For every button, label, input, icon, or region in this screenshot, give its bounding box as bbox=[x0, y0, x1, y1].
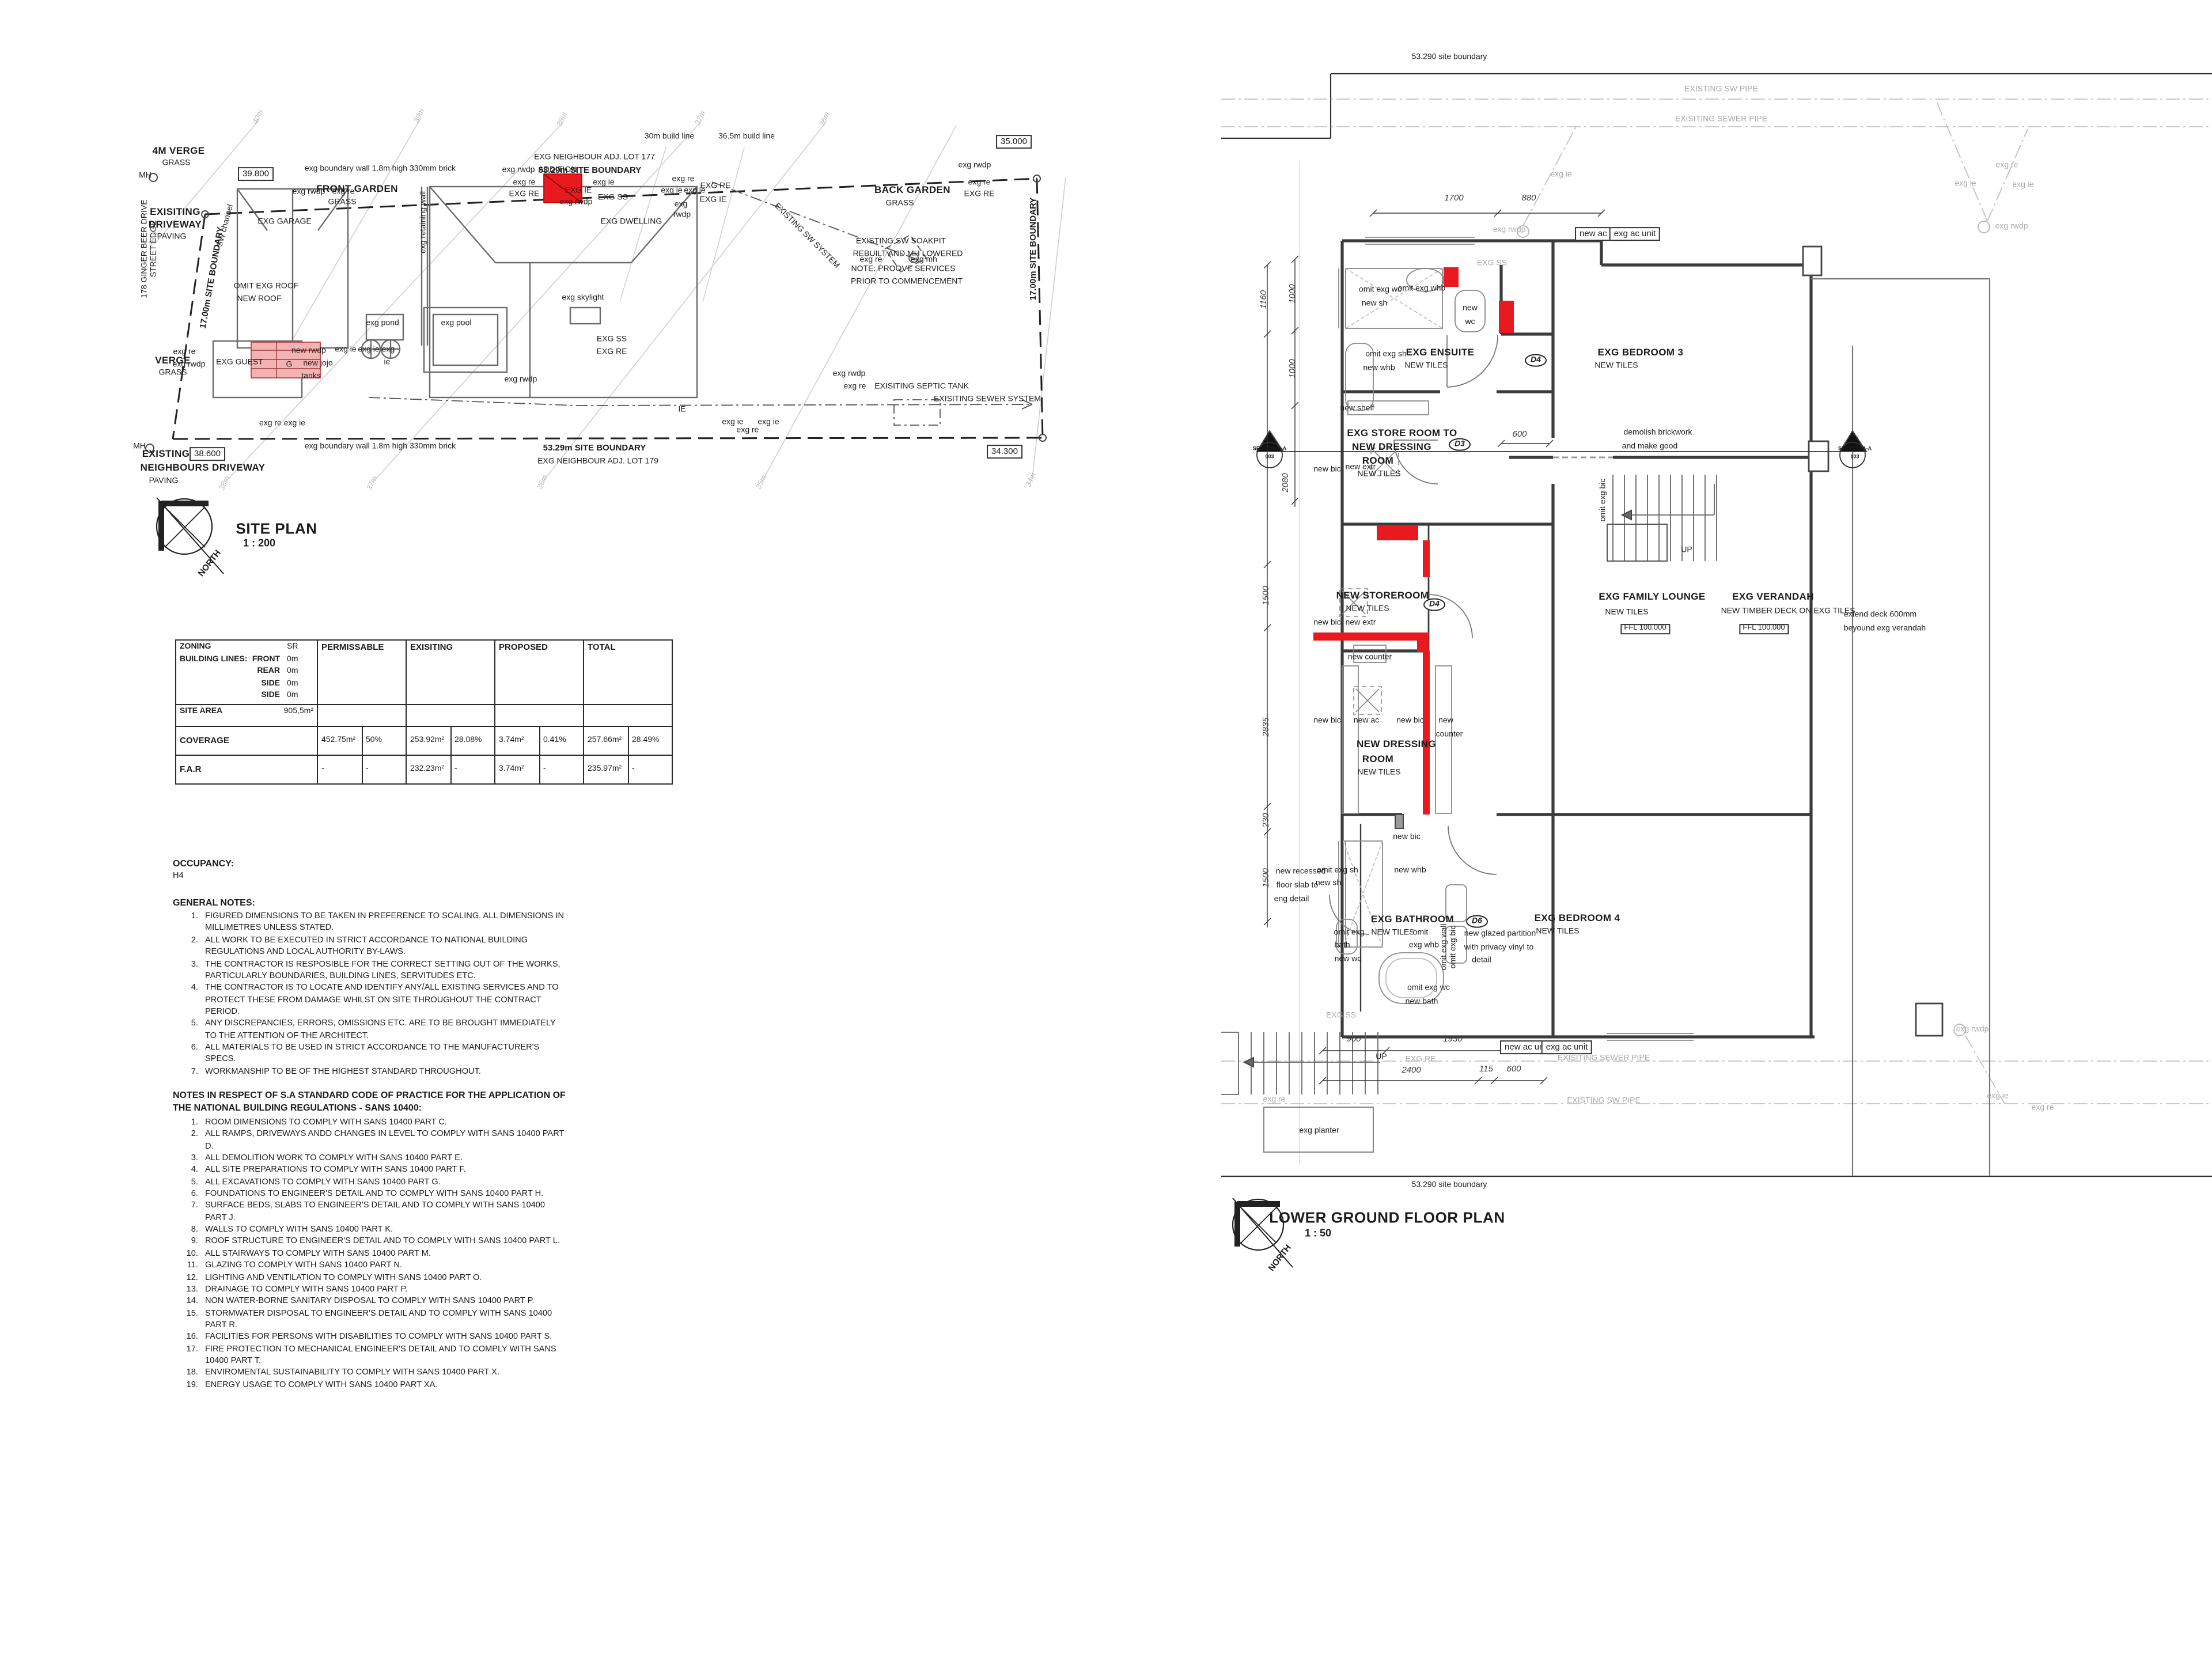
annotation: omit exg whb bbox=[1398, 285, 1446, 294]
general-notes-title: GENERAL NOTES: bbox=[173, 896, 567, 909]
room-bathroom: EXG BATHROOM bbox=[1371, 914, 1454, 925]
annotation: omit exg bic bbox=[1600, 479, 1608, 522]
annotation: EXG RE bbox=[1406, 1056, 1436, 1065]
annotation: NEW DRESSING bbox=[1352, 442, 1431, 452]
far-value: - bbox=[628, 755, 672, 783]
room-ensuite: EXG ENSUITE bbox=[1406, 347, 1475, 358]
annotation: beyound exg verandah bbox=[1844, 625, 1926, 634]
note-item: FACILITIES FOR PERSONS WITH DISABILITIES… bbox=[200, 1331, 567, 1343]
annotation: ie bbox=[384, 359, 391, 368]
room-bedroom3: EXG BEDROOM 3 bbox=[1598, 347, 1684, 358]
annotation: new bbox=[1463, 305, 1478, 313]
side-value: 0m bbox=[287, 678, 313, 690]
note-item: STORMWATER DISPOSAL TO ENGINEER'S DETAIL… bbox=[200, 1307, 567, 1331]
coverage-value: 50% bbox=[362, 726, 406, 755]
annotation: NOTE: PROOVE SERVICES bbox=[851, 266, 955, 274]
annotation: exg ie bbox=[593, 179, 614, 188]
annotation: exg boundary wall 1.8m high 330mm brick bbox=[305, 165, 456, 174]
annotation: exg rwdp bbox=[1493, 226, 1526, 235]
annotation: exg re bbox=[1996, 162, 2018, 171]
annotation: exg re bbox=[2032, 1104, 2054, 1113]
annotation: EXISITING SEWER SYSTEM bbox=[934, 396, 1041, 404]
annotation: 600 bbox=[1506, 1065, 1521, 1074]
drawing-sheet: 4M VERGEGRASS39.800MHexg boundary wall 1… bbox=[0, 0, 2212, 1659]
annotation: detail bbox=[1472, 957, 1491, 965]
annotation: new bic bbox=[1393, 834, 1420, 842]
coverage-value: 3.74m² bbox=[495, 726, 539, 755]
annotation: new whb bbox=[1363, 365, 1395, 373]
building-lines-label: BUILDING LINES: bbox=[180, 654, 252, 666]
note-item: SURFACE BEDS, SLABS TO ENGINEER'S DETAIL… bbox=[200, 1200, 567, 1224]
far-value: - bbox=[317, 755, 362, 783]
far-value: 232.23m² bbox=[406, 755, 450, 783]
note-item: ALL EXCAVATIONS TO COMPLY WITH SANS 1040… bbox=[200, 1176, 567, 1188]
annotation: omit bbox=[1413, 929, 1428, 938]
annotation: and make good bbox=[1622, 443, 1678, 452]
level-34300: 34.300 bbox=[987, 445, 1022, 459]
annotation: 115 bbox=[1479, 1065, 1493, 1074]
side-value: 0m bbox=[287, 690, 313, 702]
annotation: exg re bbox=[1263, 1096, 1286, 1105]
annotation: GRASS bbox=[328, 199, 356, 207]
exg-ac-unit: exg ac unit bbox=[1609, 227, 1661, 241]
note-item: ALL STAIRWAYS TO COMPLY WITH SANS 10400 … bbox=[200, 1248, 567, 1260]
annotation: EXG RE bbox=[700, 183, 731, 191]
note-item: ENVIROMENTAL SUSTAINABILITY TO COMPLY WI… bbox=[200, 1367, 567, 1379]
annotation: EXG RE bbox=[597, 349, 627, 357]
sans-notes-list: ROOM DIMENSIONS TO COMPLY WITH SANS 1040… bbox=[173, 1116, 567, 1391]
room-verandah: EXG VERANDAH bbox=[1732, 592, 1814, 602]
annotation: exg re bbox=[672, 176, 695, 184]
annotation: exg rwdp bbox=[833, 370, 866, 379]
site-boundary-east: 17.00m SITE BOUNDARY bbox=[1029, 198, 1038, 301]
annotation: 003 bbox=[1265, 454, 1274, 460]
annotation: new wc bbox=[1335, 956, 1362, 964]
annotation: NEIGHBOURS DRIVEWAY bbox=[141, 463, 266, 473]
annotation: omit exg wc bbox=[1359, 286, 1402, 295]
annotation: NEW TILES bbox=[1594, 362, 1638, 371]
annotation: EXG GUEST bbox=[216, 359, 263, 368]
annotation: EXG RE bbox=[509, 191, 540, 199]
note-item: THE CONTRACTOR IS TO LOCATE AND IDENTIFY… bbox=[200, 982, 567, 1017]
annotation: demolish brickwork bbox=[1623, 429, 1692, 438]
annotation: 230 bbox=[1262, 813, 1271, 827]
note-item: ALL SITE PREPARATIONS TO COMPLY WITH SAN… bbox=[200, 1164, 567, 1176]
annotation: EXG SS bbox=[1326, 1012, 1356, 1021]
annotation: exg ie bbox=[1987, 1093, 2008, 1101]
annotation: NEW TILES bbox=[1346, 605, 1389, 614]
annotation: 1160 bbox=[1259, 290, 1268, 309]
annotation: EXISTING SW PIPE bbox=[1684, 86, 1758, 94]
annotation: NEW TIMBER DECK ON EXG TILES bbox=[1721, 608, 1855, 616]
note-item: GLAZING TO COMPLY WITH SANS 10400 PART N… bbox=[200, 1259, 567, 1271]
site-area-value: 905,5m² bbox=[284, 706, 313, 718]
annotation: new bic bbox=[1313, 466, 1340, 475]
annotation: EXG RE bbox=[964, 191, 995, 199]
verge-label: 4M VERGE bbox=[152, 146, 204, 156]
far-value: 3.74m² bbox=[495, 755, 539, 783]
annotation: extend deck 600mm bbox=[1844, 611, 1916, 620]
annotation: omit exg wall bbox=[1441, 924, 1449, 971]
occupancy-label: OCCUPANCY: bbox=[173, 857, 567, 870]
annotation: new jojo bbox=[303, 360, 332, 369]
ffl-lounge: FFL 100.000 bbox=[1620, 624, 1669, 634]
coverage-value: 28.08% bbox=[450, 726, 495, 755]
annotation: exg bbox=[675, 201, 688, 210]
annotation: omit exg wc bbox=[1407, 984, 1450, 993]
annotation: counter bbox=[1436, 731, 1463, 740]
annotation: new bic bbox=[1313, 619, 1340, 628]
annotation: omit exg sh bbox=[1365, 351, 1407, 359]
section-marker-left: SECTION A-A bbox=[1253, 446, 1286, 452]
annotation: 2400 bbox=[1402, 1066, 1421, 1075]
col-total: TOTAL bbox=[584, 640, 672, 704]
annotation: EXG NEIGHBOUR ADJ. LOT 177 bbox=[534, 154, 655, 162]
annotation: exg retaining wall bbox=[420, 191, 429, 253]
sans-notes-title-1: NOTES IN RESPECT OF S.A STANDARD CODE OF… bbox=[173, 1089, 567, 1102]
annotation: exg rwdp bbox=[959, 162, 991, 171]
notes-panel: OCCUPANCY: H4 GENERAL NOTES: FIGURED DIM… bbox=[173, 857, 567, 1402]
annotation: exg re bbox=[513, 179, 536, 188]
note-item: ROOF STRUCTURE TO ENGINEER'S DETAIL AND … bbox=[200, 1236, 567, 1248]
annotation: exg bbox=[382, 346, 395, 355]
annotation: 1500 bbox=[1262, 868, 1271, 887]
front-label: FRONT bbox=[252, 654, 287, 666]
far-row: F.A.R - - 232.23m² - 3.74m² - 235.97m² - bbox=[176, 755, 672, 783]
floor-plan-scale: 1 : 50 bbox=[1305, 1229, 1331, 1240]
note-item: ROOM DIMENSIONS TO COMPLY WITH SANS 1040… bbox=[200, 1116, 567, 1128]
rear-label: REAR bbox=[252, 666, 287, 678]
annotation: exg ie bbox=[358, 346, 379, 355]
occupancy-value: H4 bbox=[173, 870, 567, 882]
annotation: PAVING bbox=[149, 478, 179, 486]
annotation: omit exg bbox=[1334, 929, 1365, 938]
annotation: 2080 bbox=[1281, 473, 1290, 492]
level-35000: 35.000 bbox=[996, 135, 1032, 149]
annotation: PAVING bbox=[157, 233, 187, 242]
note-item: THE CONTRACTOR IS RESPOSIBLE FOR THE COR… bbox=[200, 958, 567, 982]
zoning-value: SR bbox=[287, 642, 313, 654]
annotation: exg ie bbox=[722, 419, 743, 427]
site-plan-title: SITE PLAN bbox=[236, 521, 317, 536]
zoning-table: ZONINGSR BUILDING LINES:FRONT0m REAR0m S… bbox=[175, 639, 673, 784]
coverage-label: COVERAGE bbox=[176, 726, 317, 755]
annotation: exg ie bbox=[2012, 181, 2033, 190]
annotation: 2835 bbox=[1262, 717, 1271, 736]
annotation: exg planter bbox=[1299, 1127, 1339, 1136]
general-notes-list: FIGURED DIMENSIONS TO BE TAKEN IN PREFER… bbox=[173, 910, 567, 1077]
annotation: exg pool bbox=[441, 320, 472, 328]
annotation: new extr bbox=[1346, 464, 1376, 472]
annotation: 880 bbox=[1521, 194, 1536, 203]
annotation: NEW TILES bbox=[1357, 769, 1400, 778]
site-area-label: SITE AREA bbox=[180, 706, 249, 718]
far-value: - bbox=[450, 755, 495, 783]
zoning-info-cell: ZONINGSR BUILDING LINES:FRONT0m REAR0m S… bbox=[176, 640, 317, 704]
front-value: 0m bbox=[287, 654, 313, 666]
coverage-value: 253.92m² bbox=[406, 726, 450, 755]
annotation: exg pond bbox=[366, 320, 399, 328]
annotation: exg re exg ie bbox=[259, 420, 305, 429]
annotation: new bath bbox=[1406, 998, 1438, 1007]
note-item: ALL DEMOLITION WORK TO COMPLY WITH SANS … bbox=[200, 1152, 567, 1164]
annotation: UP bbox=[1681, 547, 1692, 555]
annotation: IE bbox=[678, 406, 685, 415]
far-label: F.A.R bbox=[176, 755, 317, 783]
annotation: STREET EDGE bbox=[150, 221, 159, 278]
annotation: new bbox=[1438, 717, 1453, 726]
annotation: UP bbox=[1376, 1054, 1387, 1062]
annotation: EXG GARAGE bbox=[257, 218, 311, 227]
annotation: exg rwdp bbox=[502, 166, 535, 175]
room-bedroom4: EXG BEDROOM 4 bbox=[1535, 913, 1620, 923]
note-item: WORKMANSHIP TO BE OF THE HIGHEST STANDAR… bbox=[200, 1066, 567, 1078]
coverage-value: 28.49% bbox=[628, 726, 672, 755]
annotation: exg rwdp bbox=[1956, 1026, 1989, 1035]
annotation: new shelf bbox=[1340, 405, 1374, 414]
coverage-value: 452.75m² bbox=[317, 726, 362, 755]
annotation: 1500 bbox=[1262, 586, 1271, 605]
annotation: 178 GINGER BEER DRIVE bbox=[141, 199, 150, 298]
annotation: PRIOR TO COMMENCEMENT bbox=[851, 278, 963, 287]
annotation: omit exg bic bbox=[1450, 926, 1459, 969]
annotation: EXISTING SW PIPE bbox=[1567, 1097, 1641, 1106]
annotation: EXG DWELLING bbox=[601, 218, 662, 227]
annotation: EXISTING SW SOAKPIT bbox=[856, 238, 946, 247]
annotation: new bic bbox=[1396, 717, 1423, 726]
annotation: EXISTING bbox=[142, 449, 190, 459]
annotation: with privacy vinyl to bbox=[1464, 944, 1534, 953]
annotation: tanks bbox=[301, 373, 320, 381]
site-plan-scale: 1 : 200 bbox=[243, 539, 275, 550]
annotation: new extr bbox=[1346, 619, 1376, 628]
room-family-lounge: EXG FAMILY LOUNGE bbox=[1599, 592, 1705, 602]
zoning-label: ZONING bbox=[180, 642, 252, 654]
annotation: exg ie bbox=[757, 419, 779, 427]
note-item: DRAINAGE TO COMPLY WITH SANS 10400 PART … bbox=[200, 1283, 567, 1296]
annotation: EXG NEIGHBOUR ADJ. LOT 179 bbox=[537, 458, 658, 467]
section-marker-right: SECTION A-A bbox=[1838, 446, 1872, 452]
annotation: exg ie bbox=[661, 187, 682, 196]
annotation: GRASS bbox=[158, 369, 187, 378]
annotation: 30m build line bbox=[645, 133, 694, 142]
ffl-verandah: FFL 100.000 bbox=[1739, 624, 1788, 634]
sans-notes-title-2: THE NATIONAL BUILDING REGULATIONS - SANS… bbox=[173, 1102, 567, 1115]
annotation: NEW TILES bbox=[1536, 928, 1579, 937]
level-38600: 38.600 bbox=[190, 447, 225, 461]
col-existing: EXISITING bbox=[406, 640, 495, 704]
note-item: ANY DISCREPANCIES, ERRORS, OMISSIONS ETC… bbox=[200, 1018, 567, 1041]
annotation: EXISITING bbox=[150, 207, 200, 217]
annotation: exg whb bbox=[1409, 942, 1439, 950]
annotation: MH bbox=[139, 172, 151, 181]
annotation: 900 bbox=[1346, 1035, 1361, 1044]
fp-boundary-top: 53.290 site boundary bbox=[1412, 54, 1487, 62]
annotation: exg ie bbox=[1955, 180, 1976, 189]
annotation: exg mh bbox=[911, 256, 937, 265]
annotation: EXISITING SEWER PIPE bbox=[1675, 116, 1767, 124]
annotation: EXG SS bbox=[1477, 260, 1507, 268]
annotation: EXISITING SEWER PIPE bbox=[1558, 1055, 1650, 1063]
site-boundary-north: 53.29m SITE BOUNDARY bbox=[539, 166, 642, 175]
annotation: 1000 bbox=[1288, 359, 1297, 378]
annotation: EXG SS bbox=[597, 336, 627, 344]
coverage-value: 0.41% bbox=[539, 726, 584, 755]
annotation: EXISITING SEPTIC TANK bbox=[874, 383, 969, 392]
coverage-row: COVERAGE 452.75m² 50% 253.92m² 28.08% 3.… bbox=[176, 726, 672, 755]
exg-ac-unit-2: exg ac unit bbox=[1541, 1040, 1593, 1054]
annotation: new bic bbox=[1313, 717, 1340, 726]
far-value: 235.97m² bbox=[584, 755, 628, 783]
annotation: exg re bbox=[860, 256, 882, 265]
annotation: NEW ROOF bbox=[237, 296, 282, 304]
site-boundary-south: 53.29m SITE BOUNDARY bbox=[543, 444, 646, 453]
side-label: SIDE bbox=[252, 678, 287, 690]
annotation: eng detail bbox=[1274, 896, 1309, 904]
annotation: exg ie bbox=[335, 346, 356, 355]
annotation: EXG SS bbox=[598, 194, 628, 203]
side-label: SIDE bbox=[252, 690, 287, 702]
site-area-cell: SITE AREA905,5m² bbox=[176, 704, 317, 726]
note-item: ALL RAMPS, DRIVEWAYS ANDD CHANGES IN LEV… bbox=[200, 1128, 567, 1152]
note-item: NON WATER-BORNE SANITARY DISPOSAL TO COM… bbox=[200, 1295, 567, 1307]
annotation: wc bbox=[1465, 319, 1475, 327]
note-item: FOUNDATIONS TO ENGINEER'S DETAIL AND TO … bbox=[200, 1188, 567, 1200]
annotation: bath bbox=[1334, 942, 1350, 950]
annotation: OMIT EXG ROOF bbox=[234, 283, 299, 291]
annotation: floor slab to bbox=[1277, 882, 1318, 891]
note-item: FIRE PROTECTION TO MECHANICAL ENGINEER'S… bbox=[200, 1343, 567, 1366]
annotation: 003 bbox=[1850, 454, 1859, 460]
annotation: exg rwdp bbox=[505, 376, 537, 385]
room-new-storeroom: NEW STOREROOM bbox=[1336, 590, 1429, 601]
annotation: FRONT GARDEN bbox=[316, 184, 398, 194]
far-value: - bbox=[362, 755, 406, 783]
annotation: ROOM bbox=[1362, 754, 1394, 764]
annotation: BACK GARDEN bbox=[874, 185, 950, 195]
annotation: GRASS bbox=[885, 200, 914, 209]
annotation: new sh bbox=[1362, 300, 1387, 309]
far-value: - bbox=[539, 755, 584, 783]
annotation: new glazed partition bbox=[1464, 930, 1536, 939]
annotation: exg skylight bbox=[562, 294, 604, 303]
note-item: ALL WORK TO BE EXECUTED IN STRICT ACCORD… bbox=[200, 934, 567, 958]
note-item: FIGURED DIMENSIONS TO BE TAKEN IN PREFER… bbox=[200, 910, 567, 934]
annotation: 1700 bbox=[1444, 194, 1463, 203]
note-item: ENERGY USAGE TO COMPLY WITH SANS 10400 P… bbox=[200, 1378, 567, 1391]
room-new-dressing: NEW DRESSING bbox=[1357, 739, 1436, 749]
note-item: WALLS TO COMPLY WITH SANS 10400 PART K. bbox=[200, 1224, 567, 1236]
fp-boundary-bottom: 53.290 site boundary bbox=[1412, 1181, 1487, 1190]
note-item: LIGHTING AND VENTILATION TO COMPLY WITH … bbox=[200, 1271, 567, 1283]
annotation: GRASS bbox=[162, 160, 190, 168]
annotation: EXG IE bbox=[700, 196, 727, 205]
level-39800: 39.800 bbox=[238, 167, 274, 181]
annotation: NEW TILES bbox=[1605, 609, 1648, 618]
room-storeroom-dressing: EXG STORE ROOM TO bbox=[1347, 428, 1457, 438]
annotation: new rwdp bbox=[291, 347, 326, 356]
note-item: ALL MATERIALS TO BE USED IN STRICT ACCOR… bbox=[200, 1041, 567, 1065]
annotation: new ac bbox=[1354, 717, 1379, 726]
annotation: exg rwdp bbox=[1995, 223, 2028, 232]
annotation: 36.5m build line bbox=[718, 133, 775, 142]
col-proposed: PROPOSED bbox=[495, 640, 584, 704]
annotation: NEW TILES bbox=[1371, 929, 1414, 938]
annotation: omit exg sh bbox=[1317, 867, 1358, 876]
annotation: 1930 bbox=[1443, 1035, 1462, 1044]
annotation: 1000 bbox=[1288, 284, 1297, 303]
annotation: exg rwdp bbox=[560, 199, 593, 207]
floor-plan-title: LOWER GROUND FLOOR PLAN bbox=[1269, 1210, 1505, 1225]
annotation: EXG IE bbox=[565, 187, 592, 196]
coverage-value: 257.66m² bbox=[584, 726, 628, 755]
annotation: 600 bbox=[1512, 430, 1527, 439]
rear-value: 0m bbox=[287, 666, 313, 678]
annotation: VERGE bbox=[155, 355, 191, 366]
annotation: exg ie bbox=[1550, 171, 1571, 180]
annotation: G bbox=[286, 361, 293, 370]
annotation: new sh bbox=[1316, 880, 1341, 888]
annotation: exg re bbox=[968, 179, 991, 188]
annotation: exg re bbox=[737, 427, 759, 435]
annotation: new whb bbox=[1394, 867, 1426, 876]
drawing-geometry bbox=[0, 0, 2212, 1659]
annotation: new counter bbox=[1348, 654, 1392, 662]
annotation: rwdp bbox=[673, 211, 691, 220]
annotation: exg boundary wall 1.8m high 330mm brick bbox=[305, 443, 456, 452]
col-permissable: PERMISSABLE bbox=[317, 640, 406, 704]
annotation: NEW TILES bbox=[1404, 362, 1448, 371]
annotation: exg re bbox=[844, 383, 866, 392]
